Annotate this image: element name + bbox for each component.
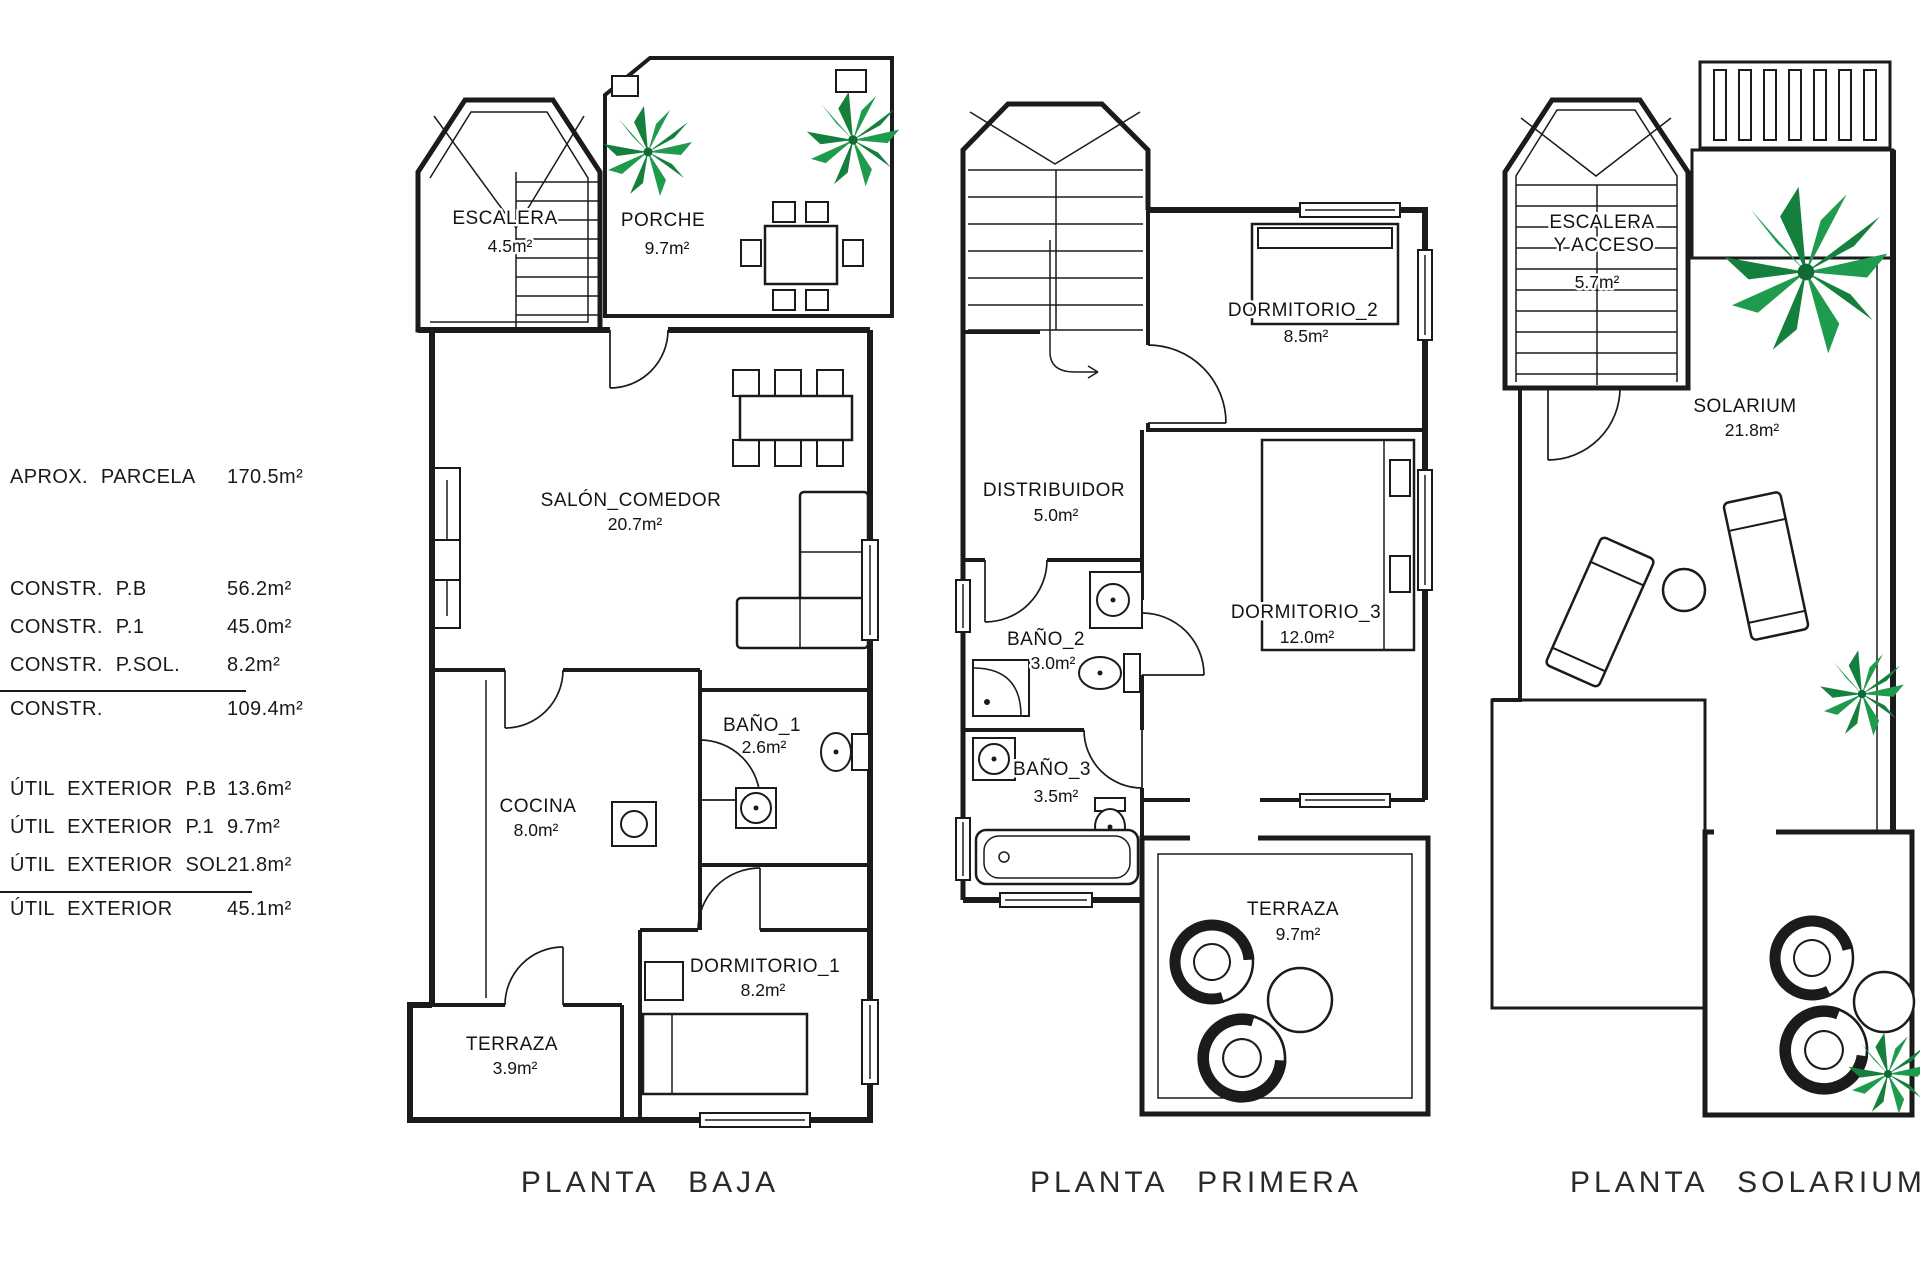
plan-title-primera: PLANTA PRIMERA — [1030, 1166, 1340, 1200]
round-table-icon — [1268, 968, 1332, 1032]
planta-solarium-floorplan: ESCALERA Y ACCESO 5.7m² SOLARIUM 21.8m² — [1492, 62, 1920, 1115]
palm-icon — [1725, 187, 1888, 354]
floorplan-drawing: ESCALERA 4.5m² PORCHE 9.7m² SALÓN_COMEDO… — [0, 0, 1920, 1280]
room-area: 8.0m² — [514, 820, 559, 840]
room-area: 8.5m² — [1284, 326, 1329, 346]
window — [1000, 893, 1092, 907]
outdoor-dining-set — [741, 202, 863, 310]
tiled-roof-area — [1492, 700, 1705, 1008]
room-area: 9.7m² — [645, 238, 690, 258]
pergola — [1700, 62, 1890, 148]
room-label: DORMITORIO_1 — [690, 956, 840, 977]
room-label: ESCALERA — [1549, 212, 1654, 233]
room-area: 8.2m² — [741, 980, 786, 1000]
room-label: Y ACCESO — [1554, 235, 1655, 256]
sun-lounger-icon — [1545, 536, 1655, 687]
window — [956, 580, 970, 632]
room-area: 5.0m² — [1034, 505, 1079, 525]
shower-icon — [973, 660, 1029, 716]
porch — [604, 58, 899, 316]
kitchen-walls — [432, 670, 700, 1005]
washing-machine-icon — [612, 802, 656, 846]
room-area: 5.7m² — [1575, 272, 1620, 292]
window — [1418, 250, 1432, 340]
window — [956, 818, 970, 880]
terrace — [1142, 838, 1428, 1118]
room-area: 20.7m² — [608, 514, 663, 534]
window — [1300, 794, 1390, 807]
room-area: 9.7m² — [1276, 924, 1321, 944]
dining-set — [733, 370, 852, 466]
sink-icon — [736, 788, 776, 828]
sofa — [737, 492, 868, 648]
lower-terrace — [1705, 832, 1920, 1115]
room-label: DORMITORIO_3 — [1231, 602, 1381, 623]
window — [1300, 203, 1400, 217]
window — [862, 540, 878, 640]
room-label: DORMITORIO_2 — [1228, 300, 1378, 321]
window — [700, 1113, 810, 1127]
room-label: TERRAZA — [466, 1034, 558, 1055]
round-table-icon — [1663, 569, 1705, 611]
fireplace — [434, 468, 460, 628]
room-label: TERRAZA — [1247, 899, 1339, 920]
room-label: BAÑO_3 — [1013, 758, 1091, 780]
room-label: SOLARIUM — [1693, 396, 1796, 417]
room-label: ESCALERA — [452, 208, 557, 229]
room-label: BAÑO_1 — [723, 714, 801, 736]
plan-title-baja: PLANTA BAJA — [500, 1166, 800, 1200]
palm-icon — [807, 92, 899, 186]
window — [1418, 470, 1432, 590]
sink-icon — [1090, 572, 1142, 628]
room-area: 3.0m² — [1031, 653, 1076, 673]
room-area: 3.9m² — [493, 1058, 538, 1078]
bathroom3 — [963, 730, 1142, 884]
floorplan-sheet: APROX. PARCELA 170.5m² CONSTR. P.B 56.2m… — [0, 0, 1920, 1280]
rooflight — [836, 70, 866, 92]
room-label: COCINA — [500, 796, 577, 817]
stair-direction-arrow — [1050, 240, 1098, 378]
room-area: 3.5m² — [1034, 786, 1079, 806]
room-label: PORCHE — [621, 210, 705, 231]
room-area: 4.5m² — [488, 236, 533, 256]
room-area: 12.0m² — [1280, 627, 1335, 647]
palm-icon — [604, 106, 692, 196]
sink-icon — [973, 738, 1015, 780]
door — [610, 330, 668, 388]
toilet-icon — [821, 733, 869, 771]
room-label: BAÑO_2 — [1007, 628, 1085, 650]
rooflight — [612, 76, 638, 96]
round-chair-icon — [1155, 905, 1269, 1019]
window — [862, 1000, 878, 1084]
planta-baja-floorplan: ESCALERA 4.5m² PORCHE 9.7m² SALÓN_COMEDO… — [410, 58, 899, 1127]
room-area: 2.6m² — [742, 737, 787, 757]
sun-lounger-icon — [1723, 492, 1809, 641]
nightstand — [645, 962, 683, 1000]
room-label: DISTRIBUIDOR — [983, 480, 1125, 501]
bed — [643, 1014, 807, 1094]
round-chair-icon — [1758, 904, 1867, 1013]
room-area: 21.8m² — [1725, 420, 1780, 440]
plan-title-solarium: PLANTA SOLARIUM — [1570, 1166, 1890, 1200]
planta-primera-floorplan: DORMITORIO_2 8.5m² DISTRIBUIDOR 5.0m² BA… — [956, 104, 1432, 1118]
toilet-icon — [1079, 654, 1140, 692]
bathtub-icon — [976, 830, 1138, 884]
room-label: SALÓN_COMEDOR — [541, 489, 722, 511]
round-table-icon — [1854, 972, 1914, 1032]
roof-gable-lines — [1521, 118, 1671, 176]
